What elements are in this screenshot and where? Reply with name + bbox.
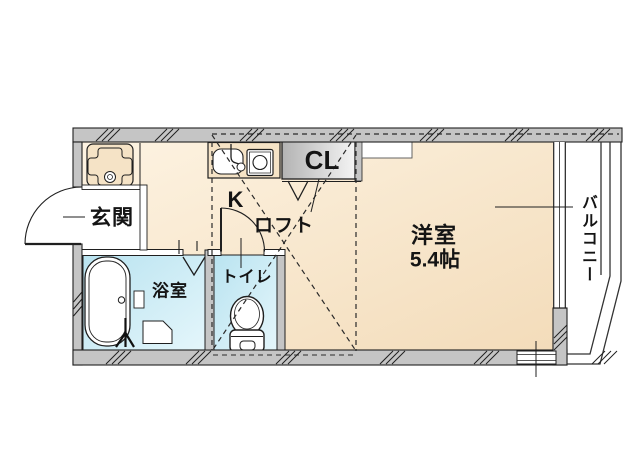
entrance-door-swing: [25, 187, 82, 244]
balcony-label: バルコニー: [579, 194, 595, 284]
kitchen-counter: [208, 143, 280, 179]
western-room-label: 洋室: [411, 225, 457, 247]
room-size-label: 5.4帖: [410, 250, 460, 271]
entrance-label: 玄関: [90, 208, 134, 229]
bath-shelf: [134, 291, 144, 308]
stove-icon: [247, 150, 273, 176]
floorplan-image: 玄関 浴室 トイレ K ロフト CL 洋室 5.4帖 バルコニー: [0, 0, 640, 470]
wall-alcove: [362, 142, 412, 158]
outer-wall-left: [73, 142, 82, 365]
washer-pan-icon: [87, 144, 133, 186]
window-right: [553, 142, 567, 308]
loft-label: ロフト: [254, 217, 314, 236]
bathtub-icon: [85, 257, 130, 346]
kitchen-label: K: [228, 189, 245, 211]
toilet-icon: [230, 297, 264, 353]
closet-label: CL: [305, 147, 340, 173]
bathroom-label: 浴室: [152, 283, 188, 300]
toilet-label: トイレ: [221, 270, 272, 286]
floorplan-canvas: [0, 0, 640, 470]
